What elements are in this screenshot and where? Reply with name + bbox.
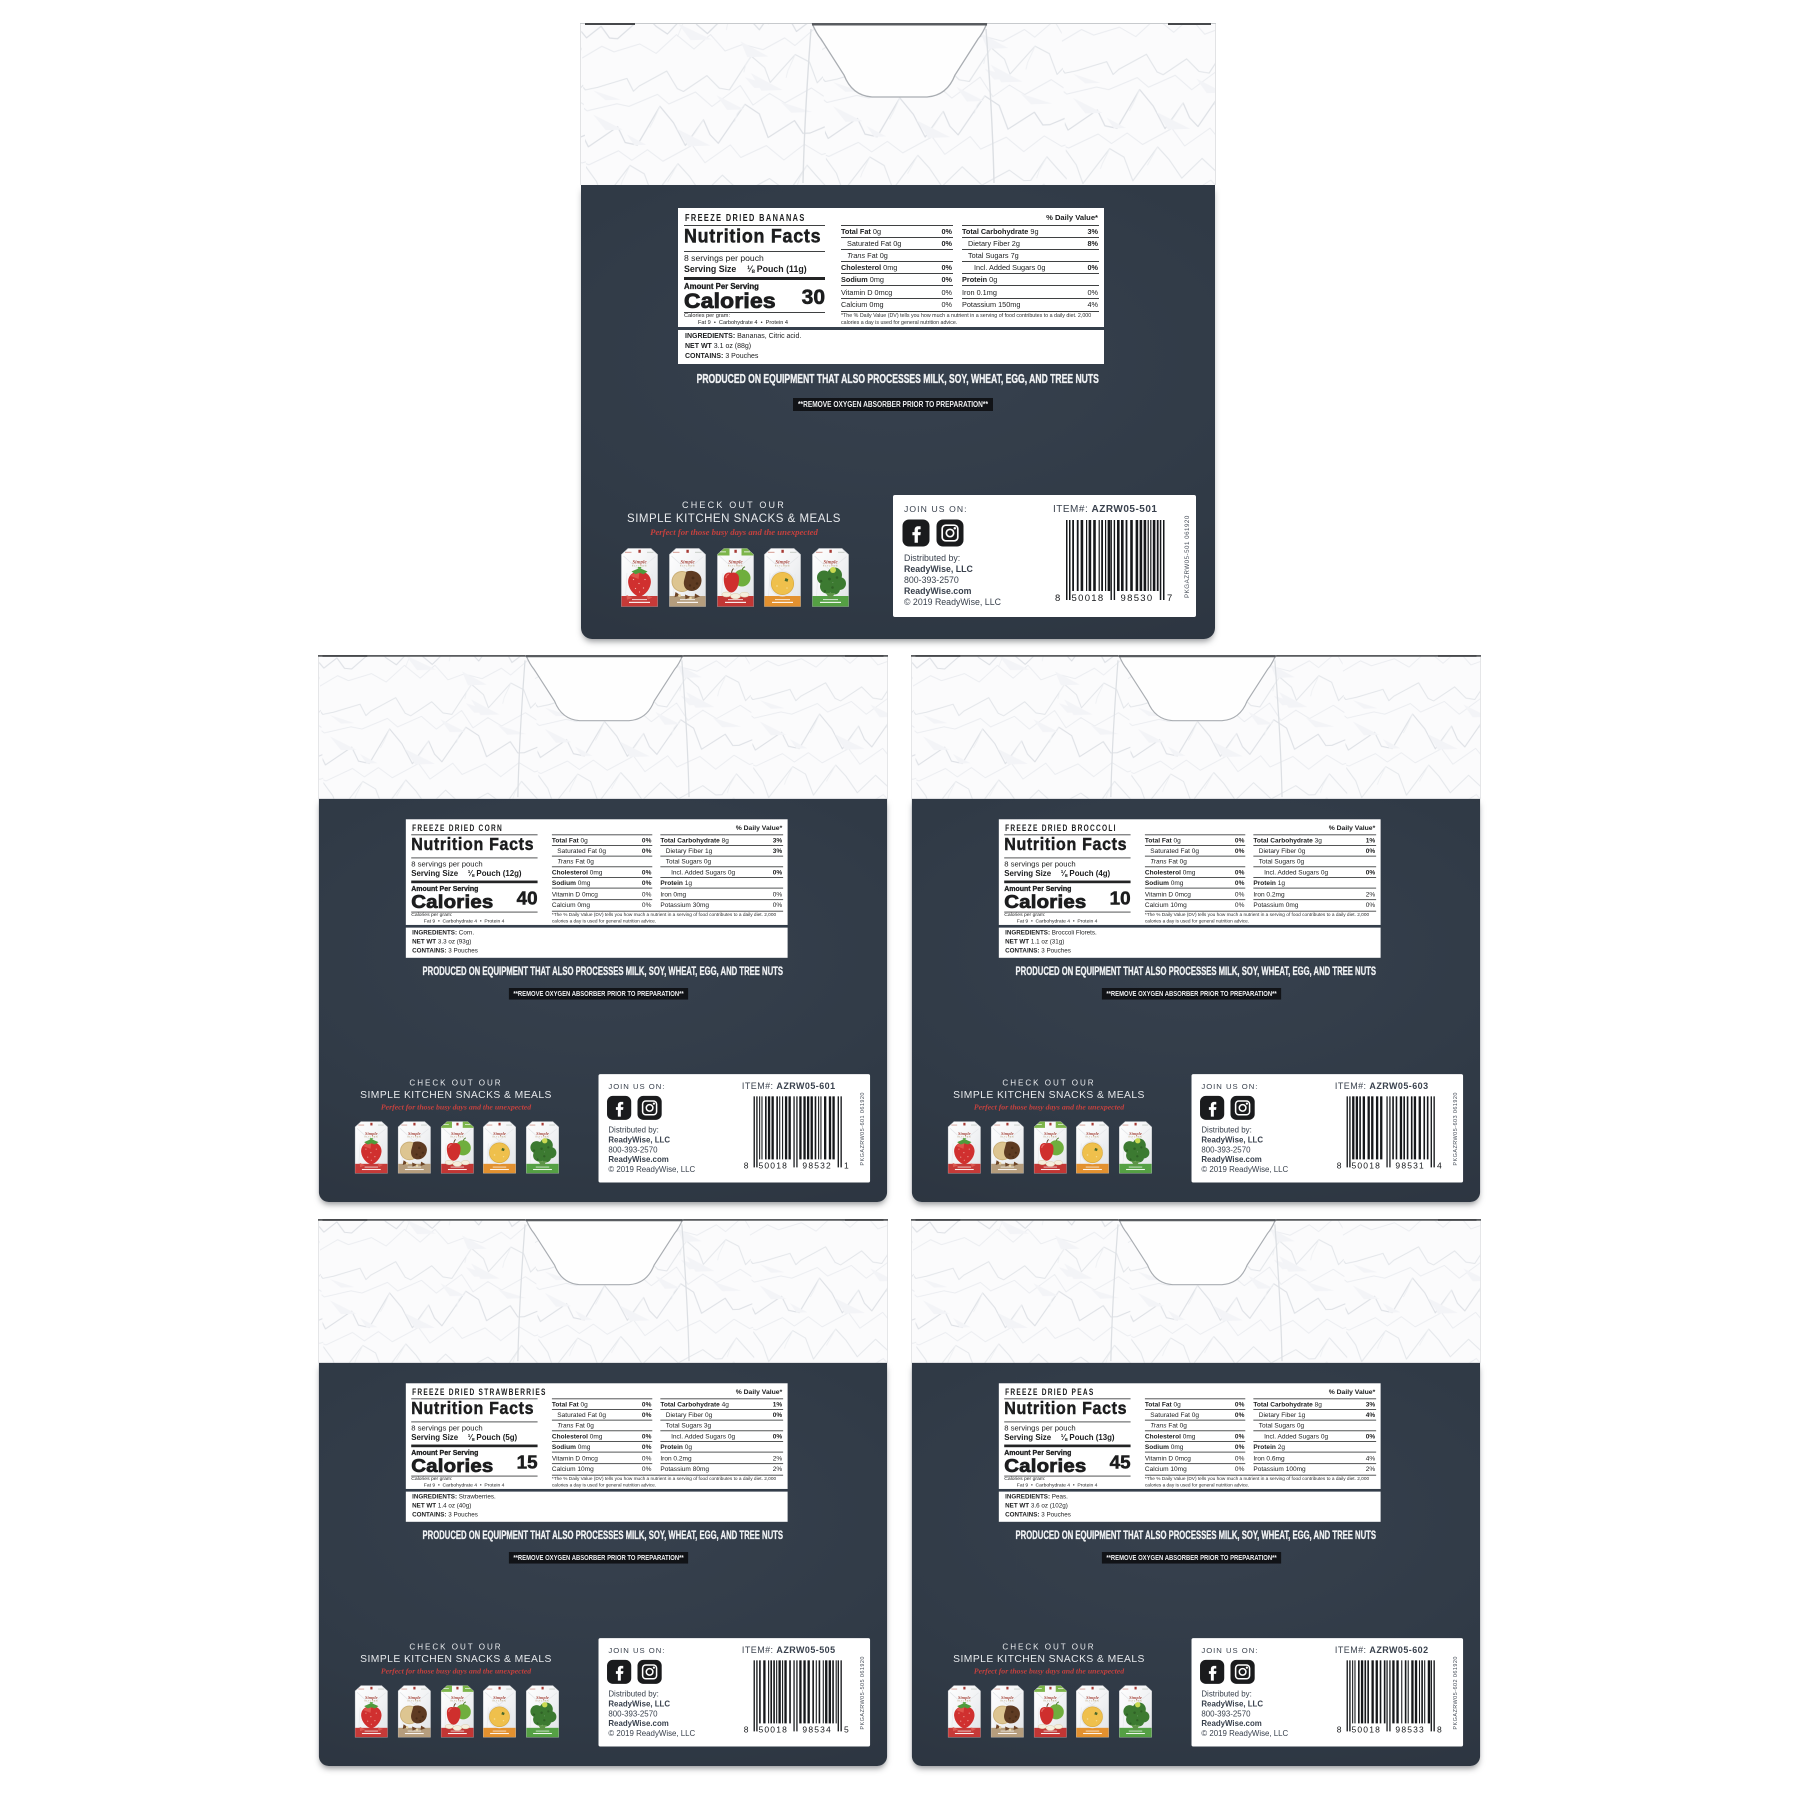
- svg-text:KITCHEN: KITCHEN: [407, 1701, 421, 1703]
- svg-text:KITCHEN: KITCHEN: [823, 566, 838, 568]
- svg-text:Simple: Simple: [1001, 1131, 1014, 1136]
- svg-text:KITCHEN: KITCHEN: [1043, 1137, 1057, 1139]
- svg-text:98533: 98533: [1395, 1724, 1424, 1734]
- svg-text:KITCHEN: KITCHEN: [1129, 1701, 1143, 1703]
- svg-text:KITCHEN: KITCHEN: [493, 1701, 507, 1703]
- svg-text:KITCHEN: KITCHEN: [1086, 1701, 1100, 1703]
- svg-text:8: 8: [1337, 1160, 1342, 1170]
- svg-text:7: 7: [1167, 593, 1172, 604]
- svg-text:50018: 50018: [1352, 1160, 1381, 1170]
- svg-text:Simple: Simple: [365, 1695, 378, 1700]
- svg-text:98532: 98532: [802, 1160, 831, 1170]
- svg-text:KITCHEN: KITCHEN: [536, 1137, 550, 1139]
- svg-text:50018: 50018: [1352, 1724, 1381, 1734]
- svg-text:50018: 50018: [1072, 593, 1105, 604]
- svg-text:Simple: Simple: [408, 1131, 421, 1136]
- svg-text:KITCHEN: KITCHEN: [450, 1137, 464, 1139]
- svg-text:1: 1: [844, 1160, 849, 1170]
- svg-text:Simple: Simple: [451, 1131, 464, 1136]
- svg-text:Simple: Simple: [493, 1695, 506, 1700]
- svg-text:Simple: Simple: [451, 1695, 464, 1700]
- svg-text:Simple: Simple: [1086, 1695, 1099, 1700]
- svg-text:Simple: Simple: [1044, 1131, 1057, 1136]
- svg-text:KITCHEN: KITCHEN: [1043, 1701, 1057, 1703]
- svg-text:KITCHEN: KITCHEN: [775, 566, 790, 568]
- svg-text:8: 8: [1437, 1724, 1442, 1734]
- svg-text:98530: 98530: [1121, 593, 1154, 604]
- svg-text:Simple: Simple: [493, 1131, 506, 1136]
- svg-text:KITCHEN: KITCHEN: [407, 1137, 421, 1139]
- svg-text:KITCHEN: KITCHEN: [1000, 1701, 1014, 1703]
- svg-text:50018: 50018: [759, 1724, 788, 1734]
- svg-text:KITCHEN: KITCHEN: [493, 1137, 507, 1139]
- svg-text:KITCHEN: KITCHEN: [1129, 1137, 1143, 1139]
- svg-text:Simple: Simple: [1001, 1695, 1014, 1700]
- svg-text:8: 8: [1337, 1724, 1342, 1734]
- svg-text:KITCHEN: KITCHEN: [450, 1701, 464, 1703]
- svg-text:Simple: Simple: [536, 1131, 549, 1136]
- svg-text:50018: 50018: [759, 1160, 788, 1170]
- svg-text:8: 8: [744, 1160, 749, 1170]
- svg-text:Simple: Simple: [536, 1695, 549, 1700]
- svg-text:5: 5: [844, 1724, 849, 1734]
- svg-text:98534: 98534: [802, 1724, 831, 1734]
- svg-text:Simple: Simple: [1129, 1131, 1142, 1136]
- svg-text:Simple: Simple: [958, 1131, 971, 1136]
- svg-text:Simple: Simple: [1044, 1695, 1057, 1700]
- svg-text:KITCHEN: KITCHEN: [1086, 1137, 1100, 1139]
- svg-text:Simple: Simple: [365, 1131, 378, 1136]
- svg-text:KITCHEN: KITCHEN: [536, 1701, 550, 1703]
- svg-text:KITCHEN: KITCHEN: [680, 566, 695, 568]
- svg-text:8: 8: [1055, 593, 1060, 604]
- svg-text:4: 4: [1437, 1160, 1442, 1170]
- svg-text:KITCHEN: KITCHEN: [727, 566, 742, 568]
- svg-text:98531: 98531: [1395, 1160, 1424, 1170]
- svg-text:KITCHEN: KITCHEN: [1000, 1137, 1014, 1139]
- svg-text:Simple: Simple: [1086, 1131, 1099, 1136]
- svg-text:Simple: Simple: [958, 1695, 971, 1700]
- svg-text:8: 8: [744, 1724, 749, 1734]
- svg-text:Simple: Simple: [1129, 1695, 1142, 1700]
- svg-text:Simple: Simple: [408, 1695, 421, 1700]
